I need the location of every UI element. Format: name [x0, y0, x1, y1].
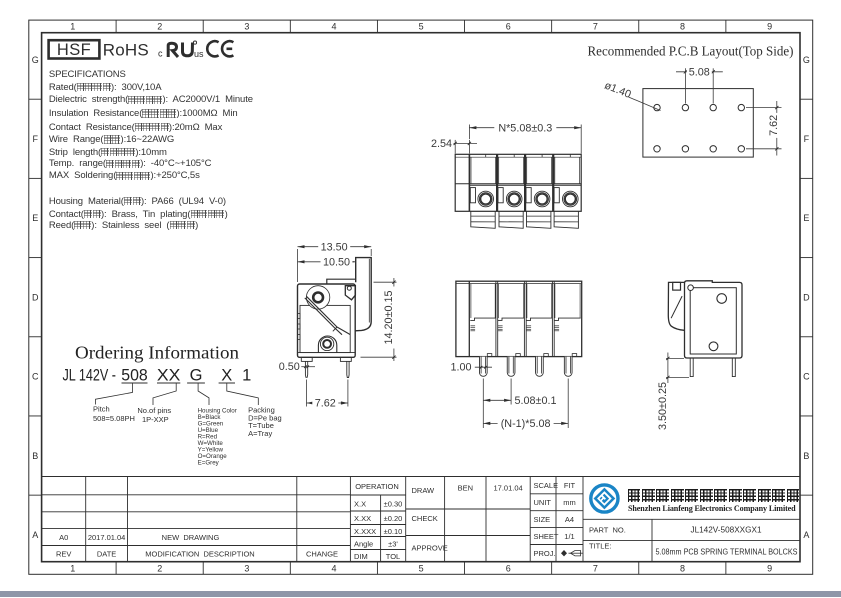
svg-text:Ordering Information: Ordering Information [75, 343, 239, 363]
svg-text:A4: A4 [565, 515, 574, 524]
svg-text:7: 7 [593, 563, 598, 573]
svg-text:X.XXX: X.XXX [354, 527, 376, 536]
svg-text:BEN: BEN [458, 484, 473, 493]
svg-text:JL142V-508XXGX1: JL142V-508XXGX1 [690, 526, 761, 535]
svg-text:c: c [158, 49, 163, 59]
svg-text:E=Grey: E=Grey [198, 460, 220, 467]
svg-text:6: 6 [506, 563, 511, 573]
svg-text:0.50: 0.50 [279, 361, 300, 373]
svg-text:508=5.08PH: 508=5.08PH [93, 414, 135, 423]
svg-text:PROJ.: PROJ. [534, 549, 556, 558]
svg-text:TOL: TOL [386, 552, 400, 561]
svg-text:A: A [32, 530, 38, 540]
svg-text:G: G [803, 55, 810, 65]
svg-text:5.08: 5.08 [689, 66, 710, 78]
svg-text:C: C [803, 372, 810, 382]
svg-text:2: 2 [157, 563, 162, 573]
svg-text:DIM: DIM [354, 552, 368, 561]
svg-text:MODIFICATION DESCRIPTION: MODIFICATION DESCRIPTION [145, 550, 254, 559]
svg-text:N*5.08±0.3: N*5.08±0.3 [498, 122, 552, 134]
svg-text:JL 142V -: JL 142V - [63, 367, 117, 385]
svg-text:X: X [221, 367, 232, 385]
svg-text:4: 4 [332, 22, 337, 32]
svg-text:A0: A0 [59, 533, 68, 542]
svg-text:13.50: 13.50 [321, 241, 348, 253]
svg-text:Pitch: Pitch [93, 405, 110, 414]
svg-text:±0.30: ±0.30 [384, 500, 403, 509]
svg-text:E: E [32, 213, 38, 223]
svg-text:8: 8 [680, 22, 685, 32]
svg-text:SHEET: SHEET [534, 532, 559, 541]
svg-text:(N-1)*5.08: (N-1)*5.08 [501, 418, 551, 430]
svg-text:mm: mm [563, 498, 576, 507]
svg-text:D: D [803, 292, 810, 302]
svg-text:4: 4 [332, 563, 337, 573]
svg-text:1P-XXP: 1P-XXP [142, 415, 169, 424]
svg-text:REV: REV [56, 550, 71, 559]
svg-text:SCALE: SCALE [534, 481, 559, 490]
svg-text:F: F [32, 134, 38, 144]
svg-text:B: B [803, 451, 809, 461]
svg-text:±0.10: ±0.10 [384, 527, 403, 536]
svg-text:3: 3 [244, 563, 249, 573]
svg-text:B: B [32, 451, 38, 461]
svg-text:7.62: 7.62 [315, 398, 336, 410]
svg-text:Recommended P.C.B Layout(Top S: Recommended P.C.B Layout(Top Side) [588, 44, 794, 59]
svg-text:1.00: 1.00 [450, 362, 471, 374]
svg-text:1: 1 [70, 563, 75, 573]
svg-text:UNIT: UNIT [534, 498, 552, 507]
svg-text:G: G [32, 55, 39, 65]
svg-text:TITLE:: TITLE: [589, 542, 612, 551]
svg-text:E: E [803, 213, 809, 223]
svg-text:X.X: X.X [354, 500, 366, 509]
svg-text:2: 2 [157, 22, 162, 32]
svg-text:CHECK: CHECK [412, 514, 438, 523]
svg-text:NEW DRAWING: NEW DRAWING [162, 533, 220, 542]
svg-text:XX: XX [157, 367, 181, 385]
svg-text:G: G [190, 367, 203, 385]
svg-text:2.54: 2.54 [431, 138, 452, 150]
svg-text:A: A [803, 530, 809, 540]
svg-text:PART NO.: PART NO. [589, 526, 626, 535]
svg-text:RoHS: RoHS [103, 40, 149, 59]
svg-text:1: 1 [70, 22, 75, 32]
svg-text:APPROVE: APPROVE [412, 544, 448, 553]
svg-text:D: D [32, 292, 39, 302]
svg-text:3: 3 [244, 22, 249, 32]
svg-text:Angle: Angle [354, 540, 373, 549]
svg-text:10.50: 10.50 [323, 256, 350, 268]
svg-text:1/1: 1/1 [564, 532, 574, 541]
svg-text:ø1.40: ø1.40 [603, 79, 633, 100]
svg-text:C: C [32, 372, 39, 382]
svg-text:OPERATION: OPERATION [355, 482, 399, 491]
svg-text:1: 1 [242, 367, 251, 385]
svg-text:DATE: DATE [97, 550, 116, 559]
svg-text:8: 8 [680, 563, 685, 573]
svg-text:HSF: HSF [57, 41, 91, 59]
svg-text:2017.01.04: 2017.01.04 [88, 533, 126, 542]
svg-text:5.08±0.1: 5.08±0.1 [515, 395, 557, 407]
svg-text:14.20±0.15: 14.20±0.15 [383, 291, 395, 345]
svg-text:±0.20: ±0.20 [384, 514, 403, 523]
svg-text:7.62: 7.62 [768, 115, 780, 136]
svg-text:FIT: FIT [564, 481, 576, 490]
svg-text:9: 9 [767, 563, 772, 573]
svg-text:CHANGE: CHANGE [306, 550, 338, 559]
svg-text:508: 508 [121, 367, 148, 385]
svg-text:No.of pins: No.of pins [137, 406, 171, 415]
svg-text:5: 5 [419, 563, 424, 573]
svg-text:F: F [804, 134, 810, 144]
svg-text:6: 6 [506, 22, 511, 32]
svg-text:A=Tray: A=Tray [248, 429, 272, 438]
svg-text:17.01.04: 17.01.04 [493, 484, 522, 493]
svg-text:SIZE: SIZE [534, 515, 551, 524]
svg-text:DRAW: DRAW [412, 486, 436, 495]
svg-text:us: us [194, 49, 204, 59]
svg-text:5: 5 [419, 22, 424, 32]
svg-text:3.50±0.25: 3.50±0.25 [657, 382, 669, 430]
svg-text:9: 9 [767, 22, 772, 32]
svg-text:X.XX: X.XX [354, 514, 371, 523]
svg-text:5.08mm PCB SPRING TERMINAL: 5.08mm PCB SPRING TERMINAL BOLCKS [656, 548, 798, 557]
svg-text:±3': ±3' [388, 540, 398, 549]
svg-text:7: 7 [593, 22, 598, 32]
